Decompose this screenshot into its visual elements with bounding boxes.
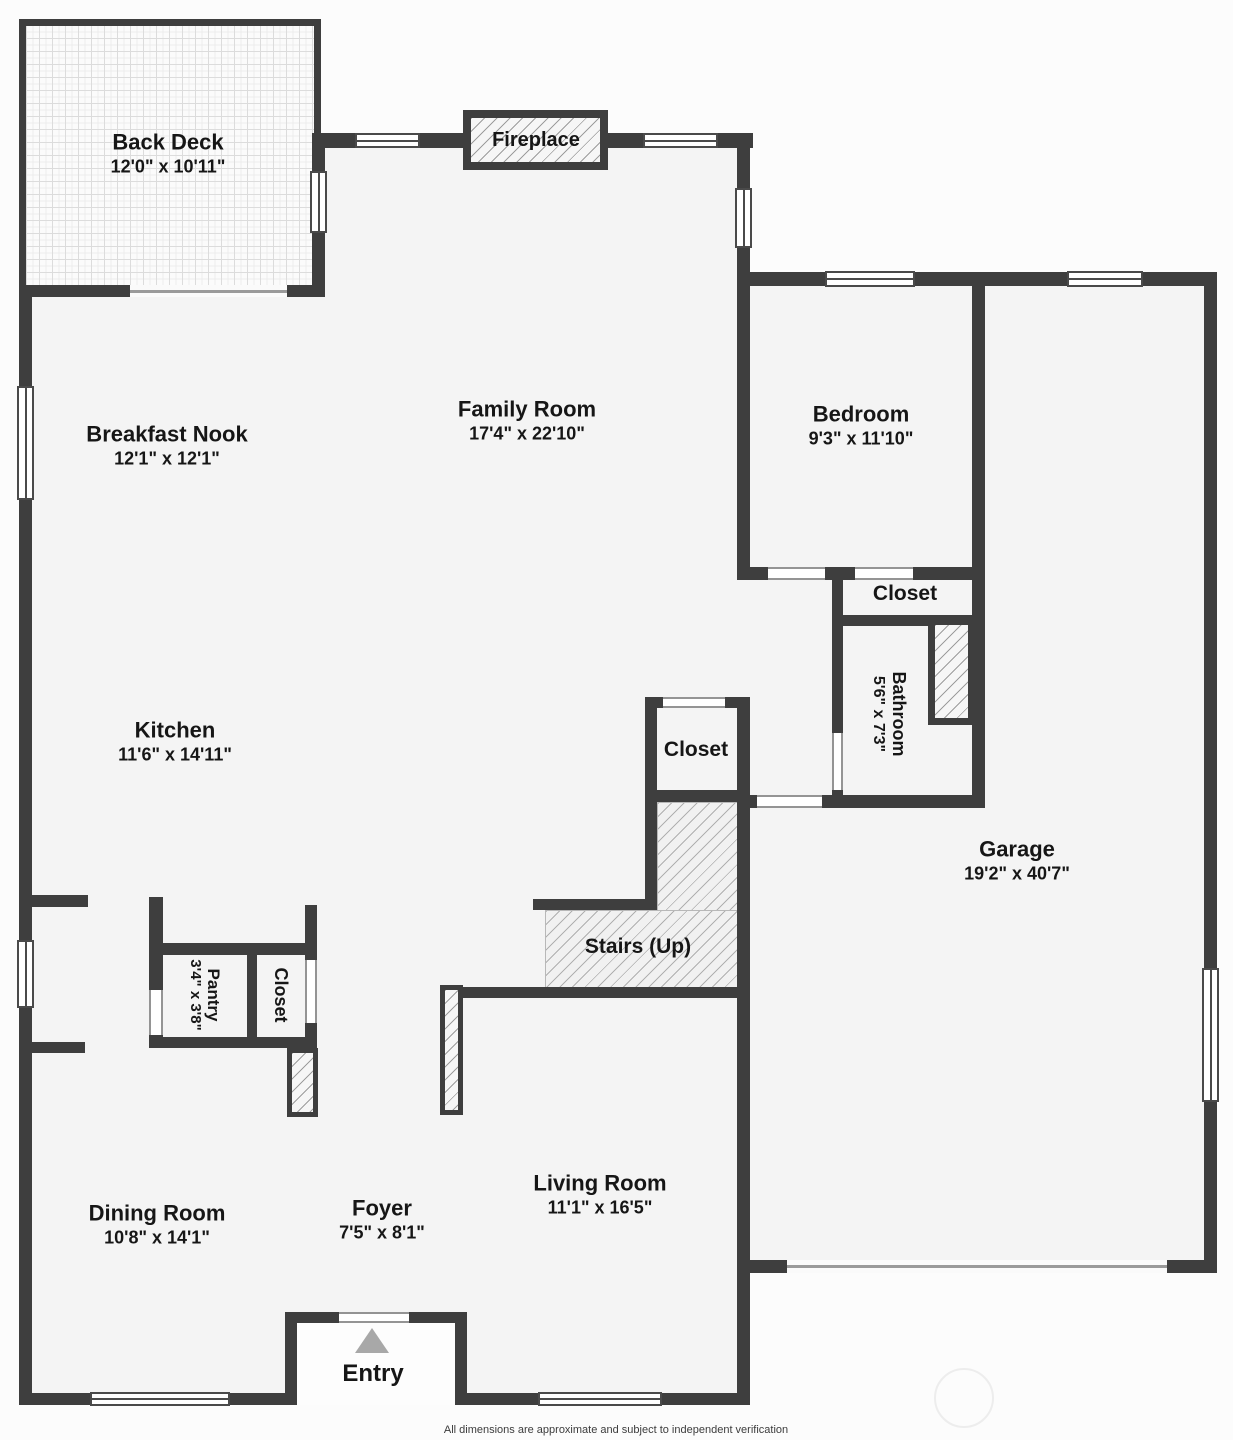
room-label-pantry: Pantry 3'4" x 3'8" [187, 959, 223, 1030]
entry-label: Entry [342, 1361, 403, 1387]
window [643, 133, 718, 148]
room-dims: 3'4" x 3'8" [187, 959, 204, 1030]
wall [737, 248, 750, 580]
wall [832, 626, 843, 733]
wall [915, 272, 1067, 286]
window [735, 188, 752, 248]
room-name: Breakfast Nook [86, 421, 247, 448]
window [310, 171, 327, 233]
front-door-opening [339, 1312, 409, 1323]
wall [750, 272, 825, 286]
room-dims: 19'2" x 40'7" [964, 863, 1070, 885]
wall [314, 19, 321, 140]
feature-name: Fireplace [492, 129, 580, 151]
wall [455, 1312, 467, 1405]
window [825, 271, 915, 287]
kitchen-closet-door-opening [305, 960, 317, 1023]
room-label-breakfast-nook: Breakfast Nook 12'1" x 12'1" [86, 421, 247, 470]
bedroom-closet-door-opening [855, 567, 913, 580]
room-dims: 12'1" x 12'1" [86, 448, 247, 470]
garage-door-opening [787, 1260, 1167, 1273]
wall [305, 905, 317, 960]
room-dims: 12'0" x 10'11" [111, 156, 226, 178]
kitchen-closet-label: Closet [269, 967, 293, 1022]
room-label-bathroom: Bathroom 5'6" x 7'3" [869, 672, 909, 757]
wall [19, 1008, 32, 1405]
bedroom-closet-label: Closet [873, 582, 937, 606]
wall [1204, 272, 1217, 968]
window [90, 1392, 230, 1406]
wall [662, 1393, 749, 1405]
wall [312, 233, 325, 297]
room-label-foyer: Foyer 7'5" x 8'1" [339, 1195, 425, 1244]
sliding-door-opening [130, 285, 287, 297]
room-name: Pantry [204, 959, 223, 1030]
room-label-kitchen: Kitchen 11'6" x 14'11" [118, 717, 232, 766]
wall [247, 943, 257, 1048]
hall-closet-label: Closet [664, 738, 728, 762]
window [1202, 968, 1219, 1102]
garage-entry-door-opening [757, 795, 822, 808]
bedroom-door-opening [768, 567, 825, 580]
hall-closet-door-opening [663, 697, 725, 708]
chase-wall [287, 1048, 318, 1117]
stairs-label: Stairs (Up) [585, 935, 691, 959]
room-label-bedroom: Bedroom 9'3" x 11'10" [809, 401, 914, 450]
window [1067, 271, 1143, 287]
half-wall [440, 985, 463, 1115]
feature-name: Closet [664, 738, 728, 762]
wall [28, 895, 88, 907]
room-name: Kitchen [118, 717, 232, 744]
wall [19, 19, 26, 292]
watermark-circle [934, 1368, 994, 1428]
wall [19, 1393, 90, 1405]
wall [149, 943, 257, 955]
wall [1204, 1102, 1217, 1273]
room-label-garage: Garage 19'2" x 40'7" [964, 836, 1070, 885]
wall [533, 899, 657, 910]
wall [645, 697, 663, 708]
wall [285, 1312, 339, 1323]
wall [607, 133, 643, 148]
wall [825, 567, 855, 580]
room-dims: 5'6" x 7'3" [869, 672, 888, 757]
wall [28, 1042, 85, 1053]
wall [149, 1037, 317, 1048]
room-name: Bedroom [809, 401, 914, 428]
wall [455, 1393, 538, 1405]
feature-name: Stairs (Up) [585, 935, 691, 959]
wall [972, 286, 985, 808]
wall [737, 1260, 787, 1273]
wall [822, 795, 972, 808]
wall [440, 987, 749, 998]
entry-arrow-icon [355, 1328, 389, 1353]
room-dims: 17'4" x 22'10" [458, 423, 596, 445]
wall [420, 133, 463, 148]
disclaimer-text: All dimensions are approximate and subje… [444, 1424, 788, 1436]
stairs-hatch-upper [657, 802, 739, 913]
wall [312, 133, 355, 148]
feature-name: Entry [342, 1361, 403, 1387]
feature-name: Closet [873, 582, 937, 606]
window [355, 133, 420, 148]
room-dims: 11'6" x 14'11" [118, 744, 232, 766]
room-name: Family Room [458, 396, 596, 423]
wall [19, 285, 32, 386]
room-dims: 10'8" x 14'1" [89, 1227, 226, 1249]
room-dims: 9'3" x 11'10" [809, 428, 914, 450]
wall [750, 567, 768, 580]
room-label-living-room: Living Room 11'1" x 16'5" [533, 1170, 666, 1219]
wall [19, 19, 321, 26]
room-name: Bathroom [888, 672, 909, 757]
room-dims: 7'5" x 8'1" [339, 1222, 425, 1244]
room-dims: 11'1" x 16'5" [533, 1197, 666, 1219]
room-name: Garage [964, 836, 1070, 863]
window [17, 940, 34, 1008]
room-name: Back Deck [111, 129, 226, 156]
wall [725, 697, 749, 708]
window [538, 1392, 662, 1406]
wall [645, 697, 657, 910]
fireplace-label: Fireplace [492, 129, 580, 151]
wall [737, 133, 750, 188]
wall [1167, 1260, 1217, 1273]
room-name: Living Room [533, 1170, 666, 1197]
wall [19, 500, 32, 940]
window [17, 386, 34, 500]
shower-fixture [928, 618, 975, 725]
room-name: Dining Room [89, 1200, 226, 1227]
room-name: Foyer [339, 1195, 425, 1222]
bathroom-door-opening [832, 733, 843, 790]
feature-name: Closet [269, 967, 293, 1022]
floor-plan: Back Deck 12'0" x 10'11" Fireplace Famil… [0, 0, 1233, 1440]
room-label-dining-room: Dining Room 10'8" x 14'1" [89, 1200, 226, 1249]
wall [645, 790, 749, 802]
wall [19, 285, 130, 297]
room-label-back-deck: Back Deck 12'0" x 10'11" [111, 129, 226, 178]
pantry-door-opening [149, 990, 163, 1035]
room-label-family-room: Family Room 17'4" x 22'10" [458, 396, 596, 445]
wall [285, 1312, 297, 1405]
